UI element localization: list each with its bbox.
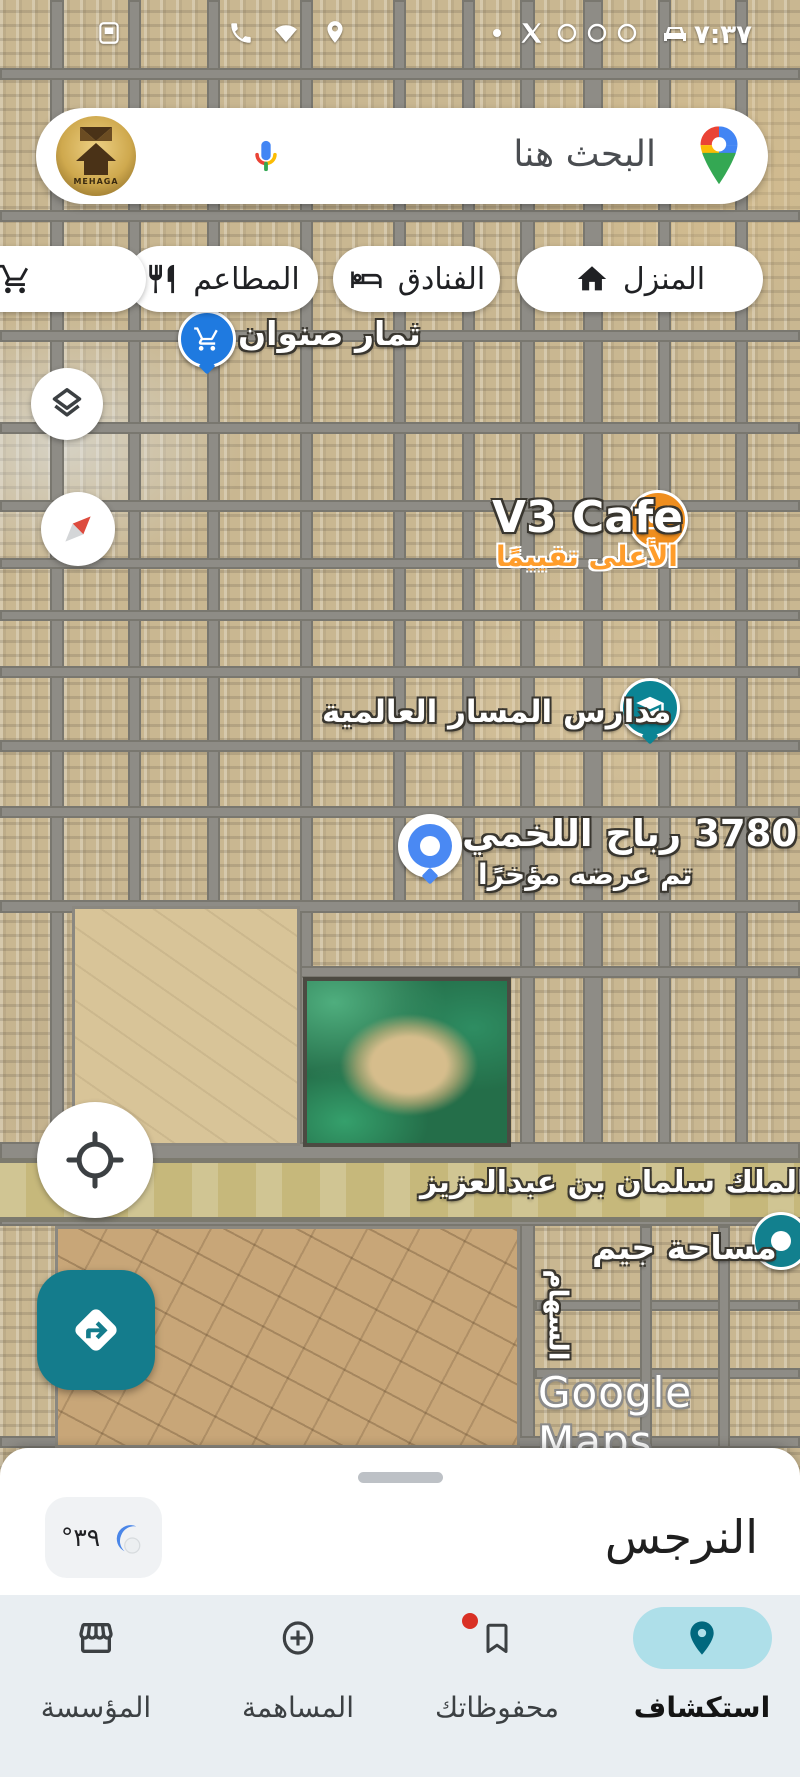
notification-dot-icon xyxy=(492,28,502,38)
shopping-cart-icon xyxy=(193,325,221,353)
my-location-button[interactable] xyxy=(37,1102,153,1218)
map-road xyxy=(0,666,800,678)
school-poi-label[interactable]: مدارس المسار العالمية xyxy=(322,694,671,730)
plus-circle-icon xyxy=(278,1618,318,1658)
hotel-bed-icon xyxy=(348,261,384,297)
home-icon xyxy=(575,262,609,296)
map-road xyxy=(0,740,800,752)
nav-tab-saved[interactable]: محفوظاتك xyxy=(417,1595,577,1745)
shopping-cart-icon xyxy=(0,262,32,296)
search-input[interactable]: البحث هنا xyxy=(513,134,656,175)
nav-pill xyxy=(229,1607,368,1669)
pond-sand-island xyxy=(340,1014,477,1116)
recent-place-dot-icon xyxy=(401,817,459,875)
weather-chip[interactable]: ٣٩° xyxy=(45,1497,162,1578)
map-road xyxy=(0,68,800,80)
chip-home-label: المنزل xyxy=(623,262,705,297)
area-title: النرجس xyxy=(605,1510,758,1564)
chip-stores[interactable]: متاج xyxy=(0,246,146,312)
avatar-brand-text: MEHAGA xyxy=(73,177,118,186)
notification-badge xyxy=(462,1613,478,1629)
google-maps-logo-pin-icon xyxy=(694,124,744,188)
avatar-brand-house-icon xyxy=(64,125,128,177)
nav-label-business: المؤسسة xyxy=(41,1691,151,1724)
map-road xyxy=(0,422,800,434)
store-poi-label[interactable]: ثمار صنوان xyxy=(238,314,421,353)
bottom-sheet[interactable]: النرجس ٣٩° xyxy=(0,1448,800,1595)
weather-temp: ٣٩° xyxy=(61,1523,100,1552)
nav-active-pill xyxy=(633,1607,772,1669)
nav-pill xyxy=(428,1607,567,1669)
night-cloud-icon xyxy=(106,1518,146,1558)
nav-tab-business[interactable]: المؤسسة xyxy=(16,1595,176,1745)
bookmark-icon xyxy=(479,1619,515,1657)
google-maps-app: ثمار صنوان V3 Cafe الأعلى تقييمًا مدارس … xyxy=(0,0,800,1777)
chip-hotels[interactable]: الفنادق xyxy=(333,246,500,312)
explore-pin-icon xyxy=(682,1618,722,1658)
directions-icon xyxy=(63,1297,129,1363)
chip-restaurants[interactable]: المطاعم xyxy=(127,246,318,312)
directions-fab[interactable] xyxy=(37,1270,155,1390)
chip-hotels-label: الفنادق xyxy=(398,262,485,297)
nav-label-explore: استكشاف xyxy=(634,1691,770,1724)
cafe-poi-label[interactable]: V3 Cafe xyxy=(492,492,683,543)
screenshot-notification-icon xyxy=(96,20,122,46)
voice-search-mic-icon[interactable] xyxy=(244,126,288,186)
storefront-icon xyxy=(76,1618,116,1658)
crosshair-icon xyxy=(64,1129,126,1191)
layers-icon xyxy=(47,384,87,424)
street-label-vertical: السهام xyxy=(543,1269,573,1360)
recent-place-label[interactable]: 3780 رباح اللخمي xyxy=(462,812,797,855)
compass-needle-icon xyxy=(47,498,109,560)
chip-home[interactable]: المنزل xyxy=(517,246,763,312)
x-app-icon xyxy=(518,20,544,46)
gym-poi-label[interactable]: مساحة جيم xyxy=(592,1228,777,1267)
phone-call-icon xyxy=(228,20,254,46)
map-road xyxy=(0,210,800,222)
nav-tab-explore[interactable]: استكشاف xyxy=(622,1595,782,1745)
nav-label-saved: محفوظاتك xyxy=(435,1691,559,1724)
cafe-poi-subtitle: الأعلى تقييمًا xyxy=(496,540,678,573)
wifi-icon xyxy=(272,20,300,46)
car-notification-icon xyxy=(662,24,688,44)
nav-pill xyxy=(27,1607,166,1669)
bottom-navigation: استكشاف محفوظاتك المساهمة المؤسسة xyxy=(0,1595,800,1777)
status-time: ٧:٣٧ xyxy=(694,20,752,50)
map-road xyxy=(535,1300,800,1311)
highway-label: طريق الملك سلمان بن عبدالعزيز xyxy=(420,1165,800,1200)
nav-label-contribute: المساهمة xyxy=(242,1691,354,1724)
account-avatar[interactable]: MEHAGA xyxy=(56,116,136,196)
location-notification-icon xyxy=(322,18,348,46)
notification-icons-group xyxy=(556,22,642,44)
map-road xyxy=(0,558,800,569)
chip-restaurants-label: المطاعم xyxy=(193,262,299,297)
search-bar[interactable]: البحث هنا MEHAGA xyxy=(36,108,768,204)
nav-tab-contribute[interactable]: المساهمة xyxy=(218,1595,378,1745)
layers-button[interactable] xyxy=(31,368,103,440)
compass-button[interactable] xyxy=(41,492,115,566)
sheet-drag-handle[interactable] xyxy=(358,1472,443,1483)
green-pond-parcel xyxy=(303,977,511,1147)
recent-place-subtitle: تم عرضه مؤخرًا xyxy=(478,858,693,891)
restaurant-icon xyxy=(145,262,179,296)
store-poi-pin[interactable] xyxy=(178,310,236,368)
recent-place-pin[interactable] xyxy=(398,814,462,878)
map-road xyxy=(0,610,800,621)
status-bar: ٧:٣٧ xyxy=(0,14,800,58)
